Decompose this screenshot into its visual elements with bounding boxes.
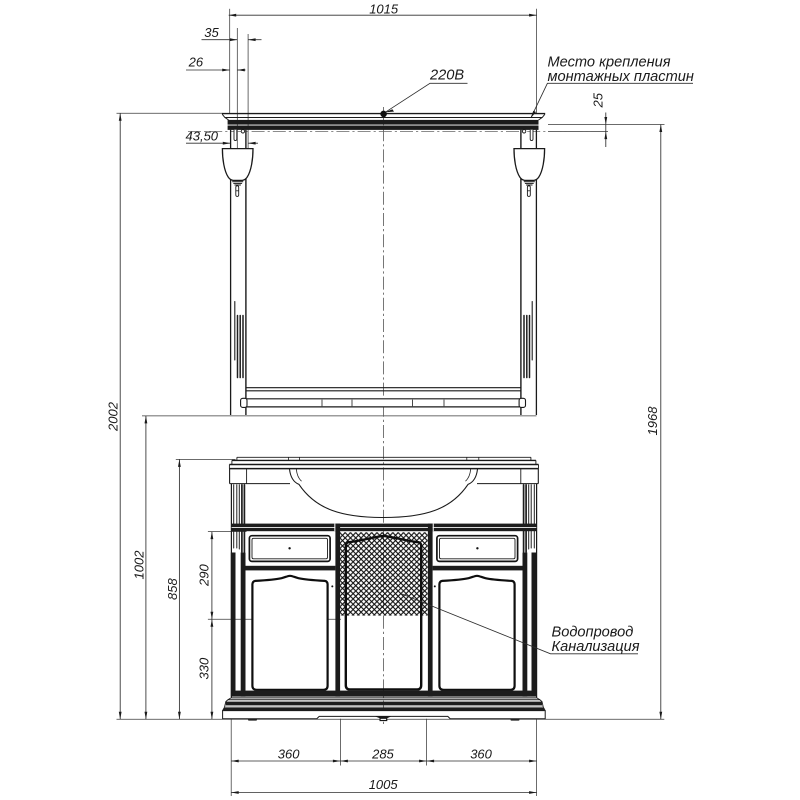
svg-text:монтажных пластин: монтажных пластин xyxy=(548,69,694,85)
svg-text:26: 26 xyxy=(188,55,204,70)
svg-text:25: 25 xyxy=(590,92,605,108)
svg-text:1002: 1002 xyxy=(132,550,147,580)
svg-text:Канализация: Канализация xyxy=(552,639,640,655)
svg-text:220В: 220В xyxy=(429,68,464,84)
svg-text:1015: 1015 xyxy=(369,1,399,16)
svg-text:290: 290 xyxy=(197,564,212,587)
svg-text:43,50: 43,50 xyxy=(186,128,219,143)
svg-text:1968: 1968 xyxy=(645,406,660,436)
svg-text:1005: 1005 xyxy=(369,777,399,792)
svg-text:360: 360 xyxy=(470,746,492,761)
svg-text:360: 360 xyxy=(278,746,300,761)
svg-text:330: 330 xyxy=(197,657,212,679)
svg-text:285: 285 xyxy=(371,746,394,761)
svg-text:2002: 2002 xyxy=(106,401,121,432)
svg-text:35: 35 xyxy=(204,25,219,40)
svg-text:858: 858 xyxy=(165,578,180,600)
